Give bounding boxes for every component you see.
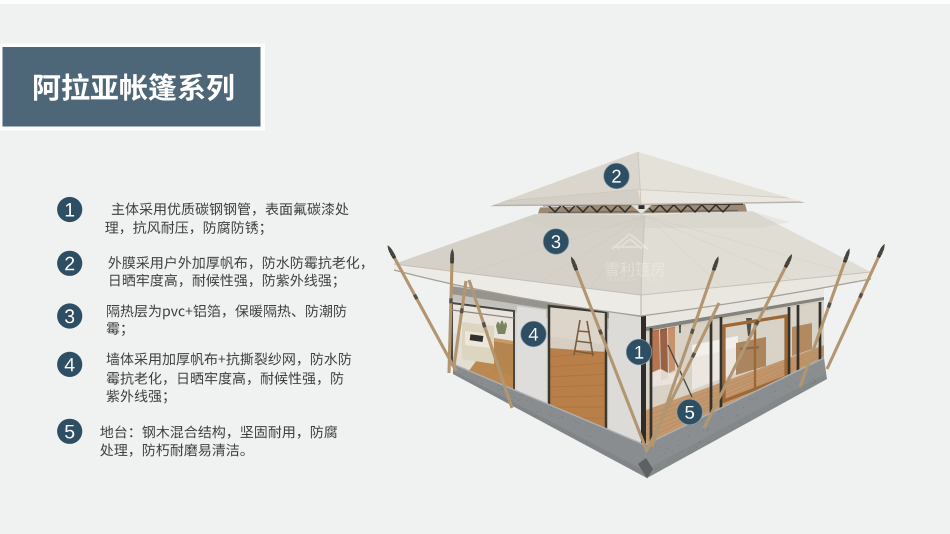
svg-text:XUELI TENT: XUELI TENT xyxy=(608,276,665,283)
